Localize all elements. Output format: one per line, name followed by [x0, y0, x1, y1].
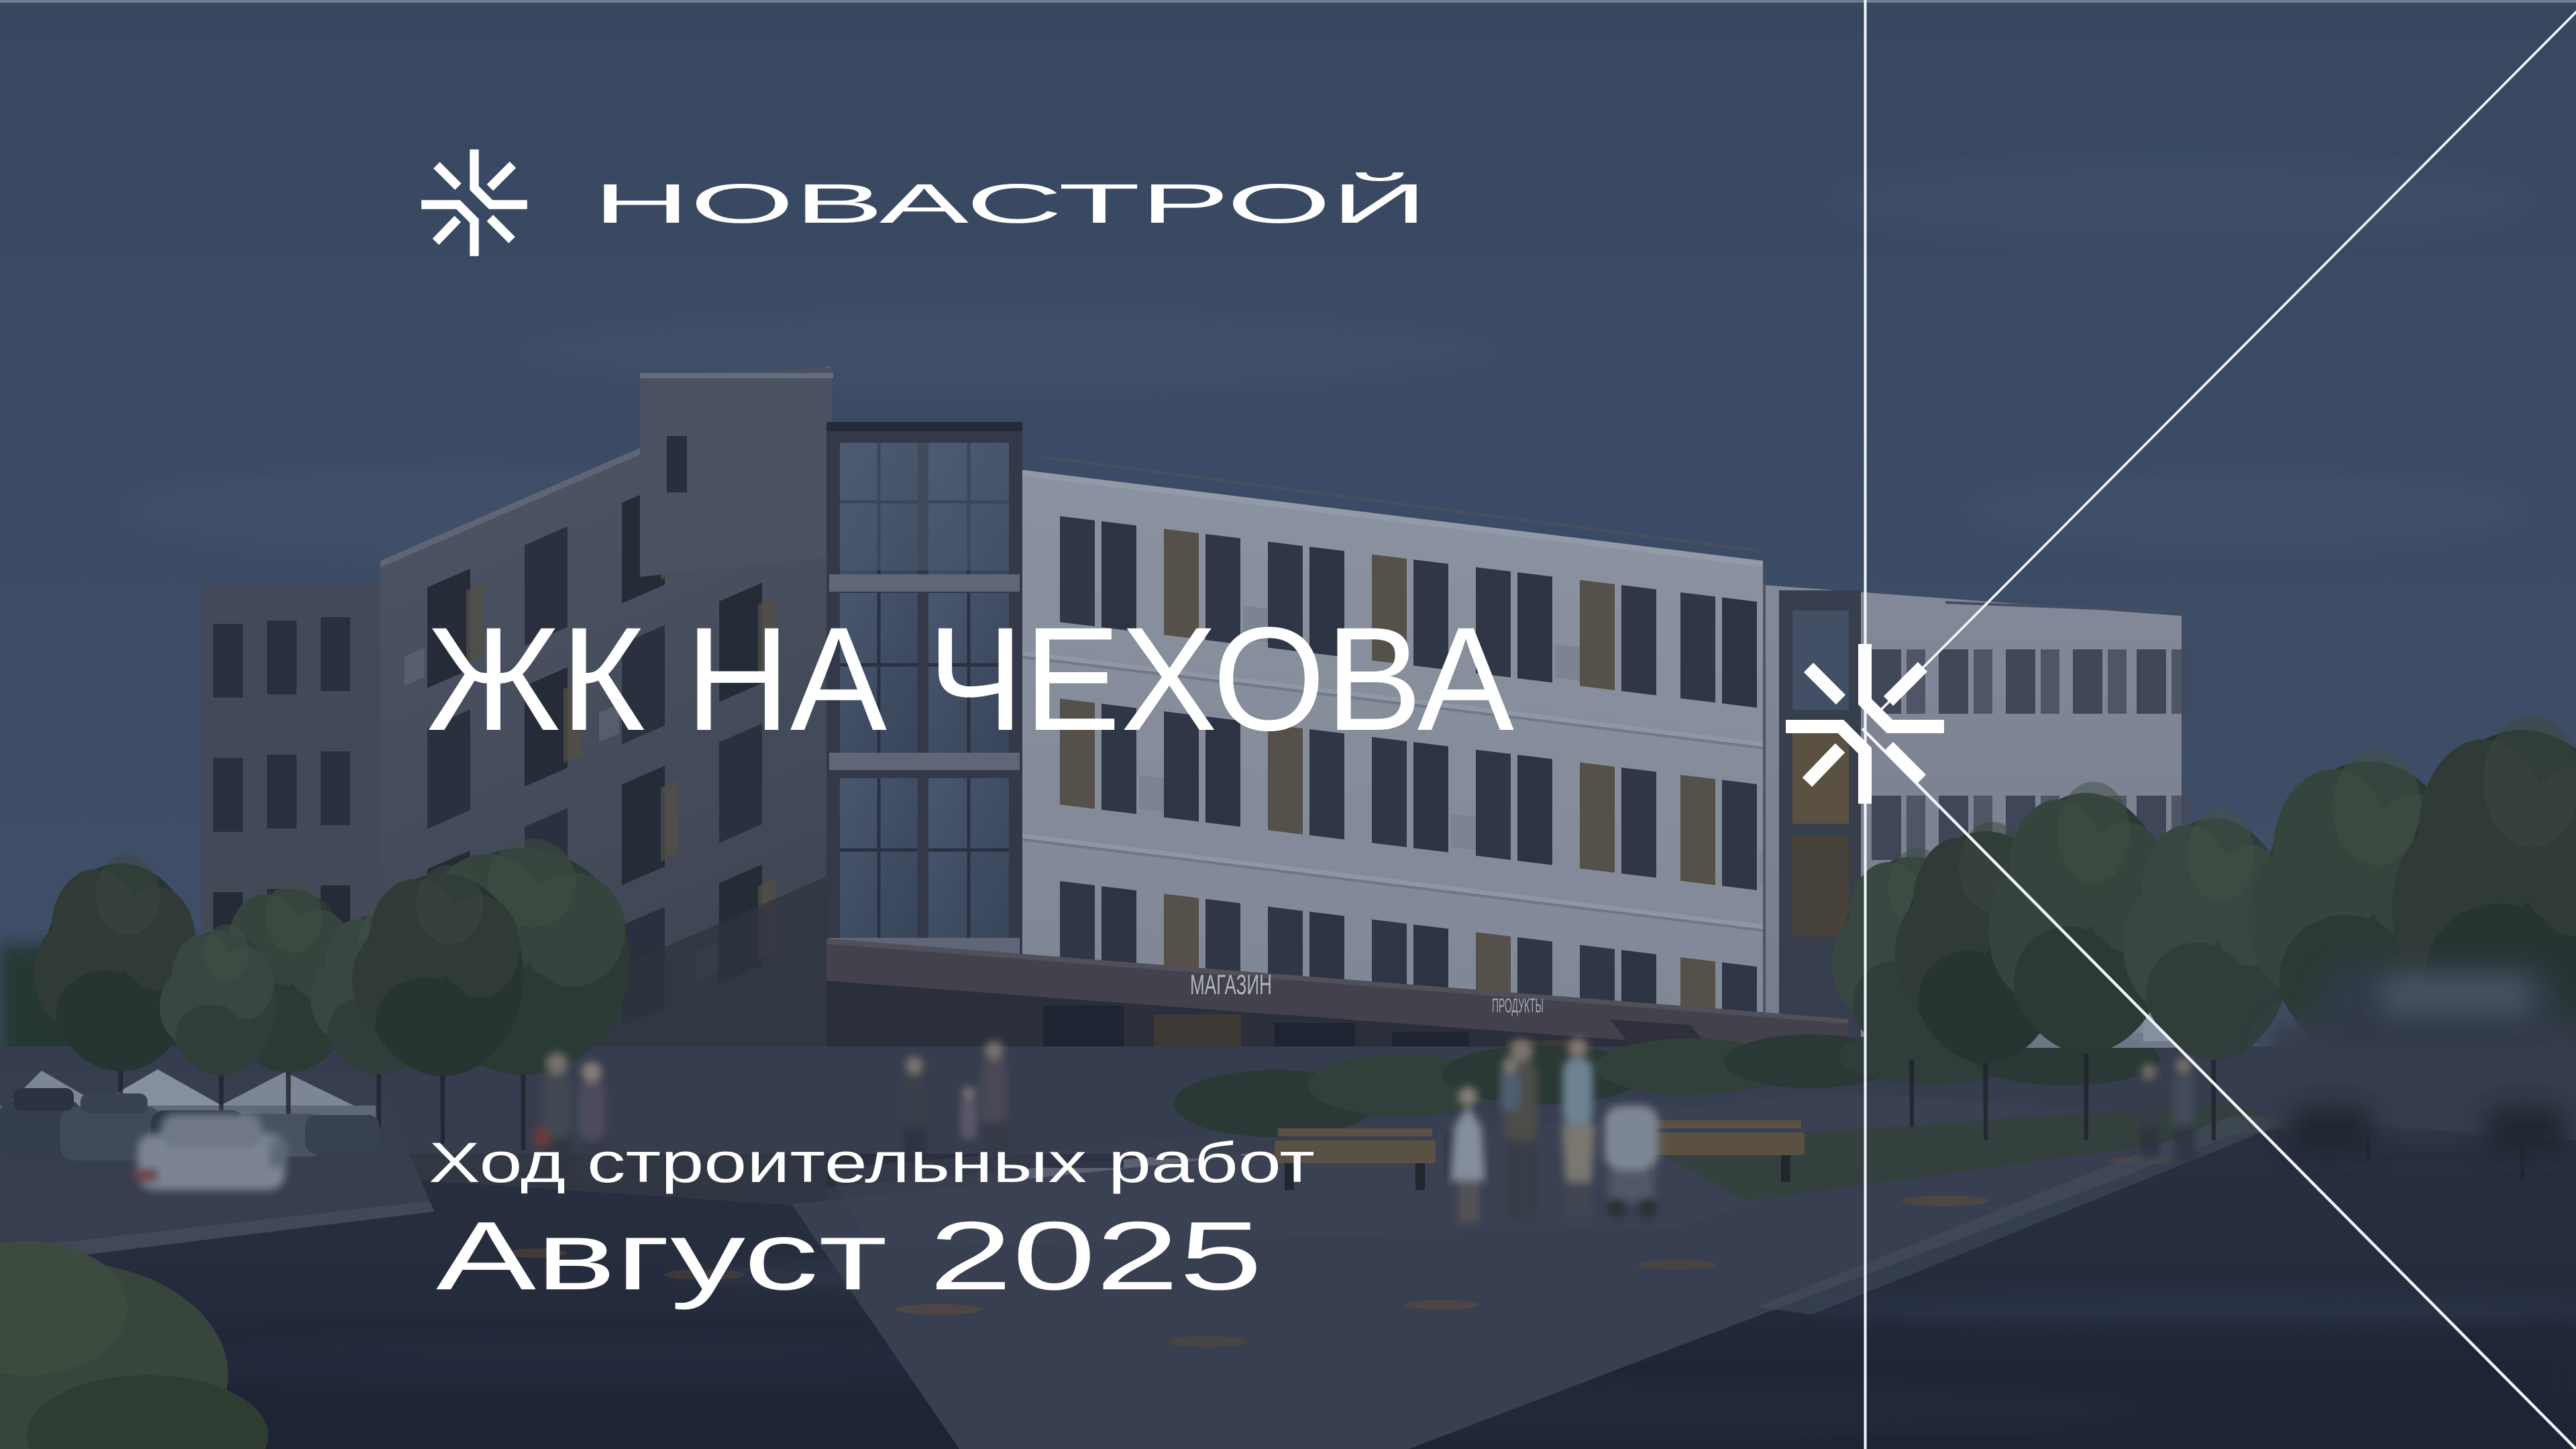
svg-text:ЖК НА ЧЕХОВА: ЖК НА ЧЕХОВА [427, 596, 1514, 761]
svg-text:НОВАСТРОЙ: НОВАСТРОЙ [593, 172, 1428, 235]
svg-text:Август 2025: Август 2025 [436, 1201, 1263, 1310]
svg-text:Ход строительных работ: Ход строительных работ [429, 1131, 1315, 1194]
